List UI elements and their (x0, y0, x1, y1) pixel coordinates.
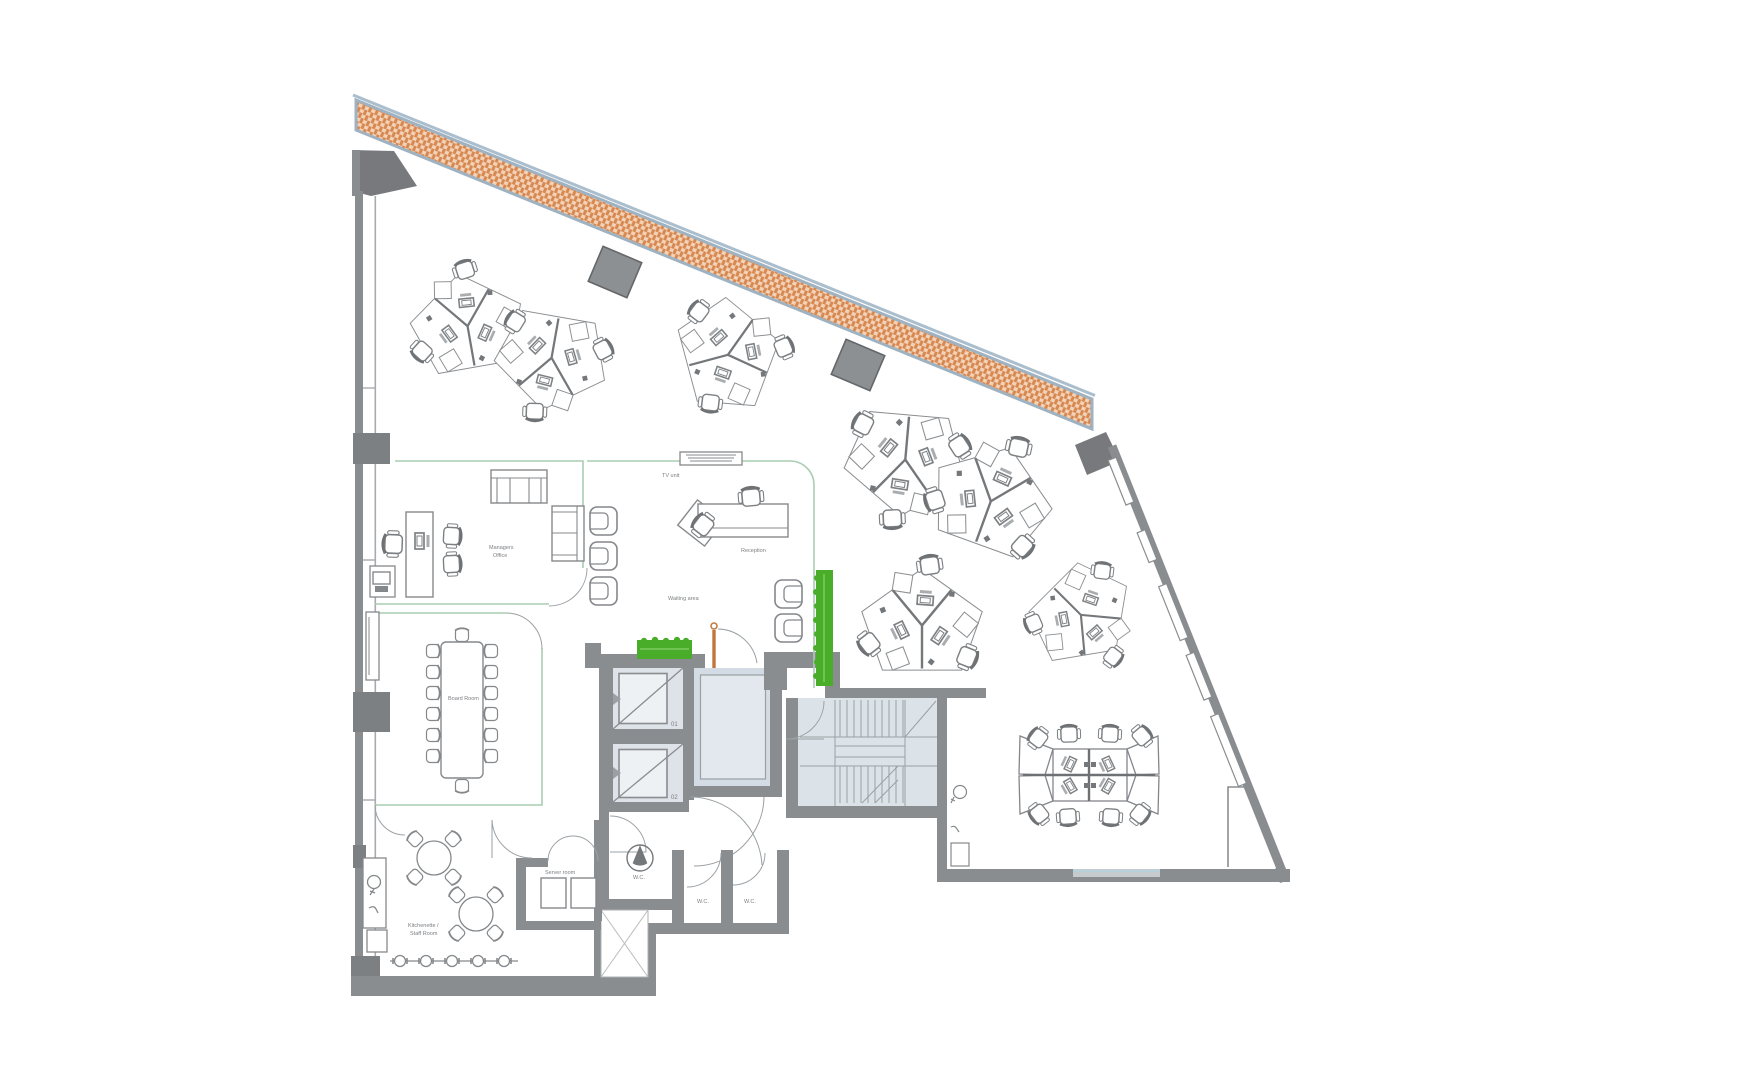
svg-text:Kitchenette /: Kitchenette / (408, 923, 439, 929)
svg-text:Managers: Managers (489, 545, 514, 551)
svg-text:01: 01 (671, 722, 678, 728)
svg-text:TV unit: TV unit (662, 473, 680, 479)
svg-text:Staff Room: Staff Room (410, 931, 438, 937)
svg-text:Board Room: Board Room (448, 696, 479, 702)
svg-text:Server room: Server room (545, 870, 576, 876)
svg-text:Reception: Reception (741, 548, 766, 554)
svg-text:W.C.: W.C. (744, 899, 756, 905)
svg-text:02: 02 (671, 795, 678, 801)
svg-text:W.C.: W.C. (697, 899, 709, 905)
svg-text:W.C.: W.C. (633, 875, 645, 881)
svg-text:Office: Office (493, 553, 507, 559)
svg-text:Waiting area: Waiting area (668, 596, 700, 602)
